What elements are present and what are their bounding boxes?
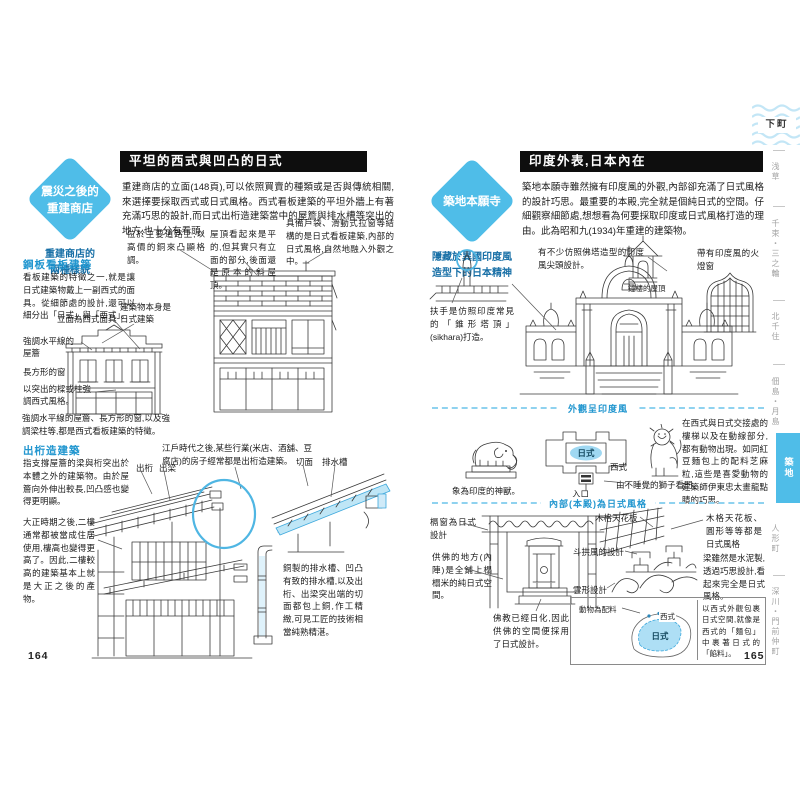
plan-western-label: 西式 xyxy=(610,462,627,474)
text-concrete-beam: 梁雖然是水泥製,透過巧思設計,看起來完全是日式風格。 xyxy=(703,552,765,603)
caption-western-features: 強調水平線的屋簷、長方形的窗,以及強調梁柱等,都是西式看板建築的特徵。 xyxy=(22,412,170,438)
label-rect-window: 長方形的窗 xyxy=(23,367,66,379)
sidebar-item-ningyocho[interactable]: 人形町 xyxy=(771,524,779,554)
page-number-right: 165 xyxy=(744,650,765,662)
annotation-buddhism: 佛教已經日化,因此供佛的空間便採用了日式設計。 xyxy=(493,612,569,650)
sidebar-item-kitasenju[interactable]: 北千住 xyxy=(771,312,779,342)
section-title-right: 印度外表,日本內在 xyxy=(520,151,763,172)
sidebar-item-tsukiji-active[interactable]: 築地 xyxy=(776,433,800,503)
label-cloud-motif: 雲形設計 xyxy=(573,585,607,597)
label-debari: 出梁 xyxy=(159,463,176,475)
temple-badge-text: 築地本願寺 xyxy=(420,194,524,211)
sidebar-item-fukagawa[interactable]: 深川・門前仲町 xyxy=(771,587,779,657)
chapter-tab: 下町 xyxy=(758,117,796,133)
sidebar-item-senzoku[interactable]: 千束・三之輪 xyxy=(771,219,779,279)
sidebar-divider xyxy=(773,575,785,576)
diagram-western-label: 西式 xyxy=(659,612,676,622)
badge-line2: 重建商店 xyxy=(18,201,122,218)
body-animals: 在西式與日式交接處的樓梯以及在動線部分,都有動物出現。如同紅豆麵包上的配料芝麻粒… xyxy=(682,417,768,506)
sidebar-divider xyxy=(773,364,785,365)
annotation-sikhara: 扶手是仿照印度常見的「錐形塔頂」(sikhara)打造。 xyxy=(430,305,514,343)
book-spread: 震災之後的 重建商店 重建商店的兩種樣貌 平坦的西式與凹凸的日式 重建商店的立面… xyxy=(0,0,800,800)
chapter-badge-text: 震災之後的 重建商店 xyxy=(18,184,122,219)
annotation-elephant: 象為印度的神獸。 xyxy=(452,486,520,498)
section-title-left: 平坦的西式與凹凸的日式 xyxy=(120,151,367,172)
diagram-divider xyxy=(697,600,698,660)
sidebar-item-tsukishima[interactable]: 佃島・月島 xyxy=(771,377,779,427)
label-animal-topping: 動物為配料 xyxy=(579,605,617,615)
cloud-motif-sketch xyxy=(606,566,702,600)
section2-heading: 出桁造建築 xyxy=(23,443,81,458)
signboard-shop-sketch xyxy=(208,260,338,420)
sidebar-item-asakusa[interactable]: 浅草 xyxy=(771,162,779,182)
dashigeta-house-sketch xyxy=(84,476,269,663)
sidebar-divider xyxy=(773,300,785,301)
divider-outside-indian: 外觀呈印度風 xyxy=(432,407,764,409)
bell-tower-sketch xyxy=(620,234,666,284)
elephant-statue-sketch xyxy=(450,420,532,482)
lion-statue-sketch xyxy=(646,424,682,480)
eaves-gutter-detail-sketch xyxy=(268,464,396,564)
divider-outside-label: 外觀呈印度風 xyxy=(560,402,636,415)
western-facade-sketch xyxy=(62,322,167,417)
annotation-road: 位於主要道路上,以高價的銅來凸顯格調。 xyxy=(127,228,205,266)
railing-spire-sketch xyxy=(428,246,514,304)
annotation-ranma: 槅窗為日式設計 xyxy=(430,516,476,542)
flame-window-sketch xyxy=(702,270,758,334)
sidebar-item-tsukiji-label: 築地 xyxy=(784,457,793,479)
downpipe-sketch xyxy=(246,542,280,647)
annotation-copper: 銅製的排水槽、凹凸有致的排水槽,以及出桁、出梁突出端的切面都包上銅,作工精緻,可… xyxy=(283,562,363,639)
text-ceiling: 木格天花板、圓形等等都是日式風格 xyxy=(706,512,762,550)
page-number-left: 164 xyxy=(28,650,49,662)
bread-diagram-box: 動物為配料 日式 西式 以西式外觀包裹日式空間,就像是西式的「麵包」中裹著日式的… xyxy=(570,597,766,665)
plan-japanese-label: 日式 xyxy=(570,447,602,459)
sidebar-divider xyxy=(773,150,785,151)
label-degeta: 出桁 xyxy=(136,463,153,475)
label-bracket: 斗拱風的設計 xyxy=(573,547,624,559)
badge-line1: 震災之後的 xyxy=(18,184,122,201)
sidebar-divider xyxy=(773,206,785,207)
diagram-japanese-label: 日式 xyxy=(644,630,676,642)
section1-heading: 鋼板看板建築 xyxy=(23,257,92,272)
